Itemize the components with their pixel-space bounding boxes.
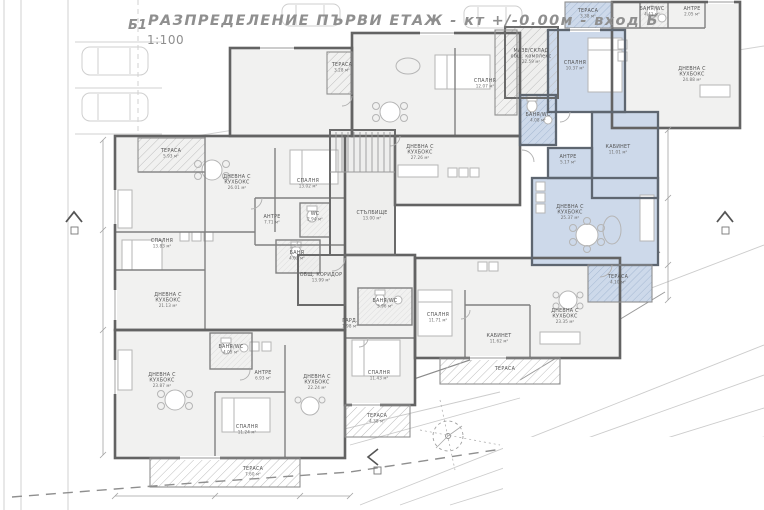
room-label: СПАЛНЯ10.37 м² xyxy=(564,60,586,70)
room-label: ГАРД.1.98 м² xyxy=(342,318,358,328)
bed-icon xyxy=(588,38,622,92)
room-label: СПАЛНЯ11.71 м² xyxy=(427,312,449,322)
car-icon xyxy=(82,47,148,75)
room-label: ТЕРАСА7.60 м² xyxy=(242,466,264,476)
floor-plan-canvas: Б1 РАЗПРЕДЕЛЕНИЕ ПЪРВИ ЕТАЖ - кт +/-0.00… xyxy=(0,0,764,510)
floor-plan-drawing: Б1 РАЗПРЕДЕЛЕНИЕ ПЪРВИ ЕТАЖ - кт +/-0.00… xyxy=(0,0,764,510)
room-label: КАБИНЕТ11.62 м² xyxy=(487,333,512,343)
room-label: ТЕРАСА xyxy=(494,366,516,372)
room-label: СПАЛНЯ13.83 м² xyxy=(151,238,173,248)
room-label: СПАЛНЯ11.24 м² xyxy=(236,424,258,434)
room-label: ТЕРАСА4.10 м² xyxy=(607,274,629,284)
room-label: ТЕРАСА3.28 м² xyxy=(331,62,353,72)
section-marker-icon xyxy=(717,212,733,234)
drawing-scale: 1:100 xyxy=(147,33,184,47)
sofa-icon xyxy=(640,195,654,241)
room-label: ТЕРАСА4.38 м² xyxy=(366,413,388,423)
sofa-icon xyxy=(540,332,580,344)
white-mask xyxy=(503,437,764,510)
room-label: АНТРЕ7.71 м² xyxy=(264,214,281,224)
sofa-icon xyxy=(398,165,438,177)
room-label: СПАЛНЯ12.07 м² xyxy=(474,78,496,88)
drawing-code: Б1 xyxy=(128,18,147,33)
room-label: КАБИНЕТ11.01 м² xyxy=(606,144,631,154)
car-icon xyxy=(82,93,148,121)
room-label: АНТРЕ6.93 м² xyxy=(255,370,272,380)
room-label: ТЕРАСА5.93 м² xyxy=(160,148,182,158)
room-label: АНТРЕ5.17 м² xyxy=(560,154,577,164)
sofa-icon xyxy=(118,190,132,228)
room-label: СПАЛНЯ11.43 м² xyxy=(368,370,390,380)
section-marker-icon xyxy=(368,449,381,474)
sofa-icon xyxy=(118,350,132,390)
tree-icon xyxy=(420,400,500,470)
room-label: ТЕРАСА3.38 м² xyxy=(577,8,599,18)
room-label: СПАЛНЯ13.02 м² xyxy=(297,178,319,188)
room-label: БАНЯ4.03 м² xyxy=(289,250,305,260)
room-label: АНТРЕ2.05 м² xyxy=(684,6,701,16)
sofa-icon xyxy=(700,85,730,97)
